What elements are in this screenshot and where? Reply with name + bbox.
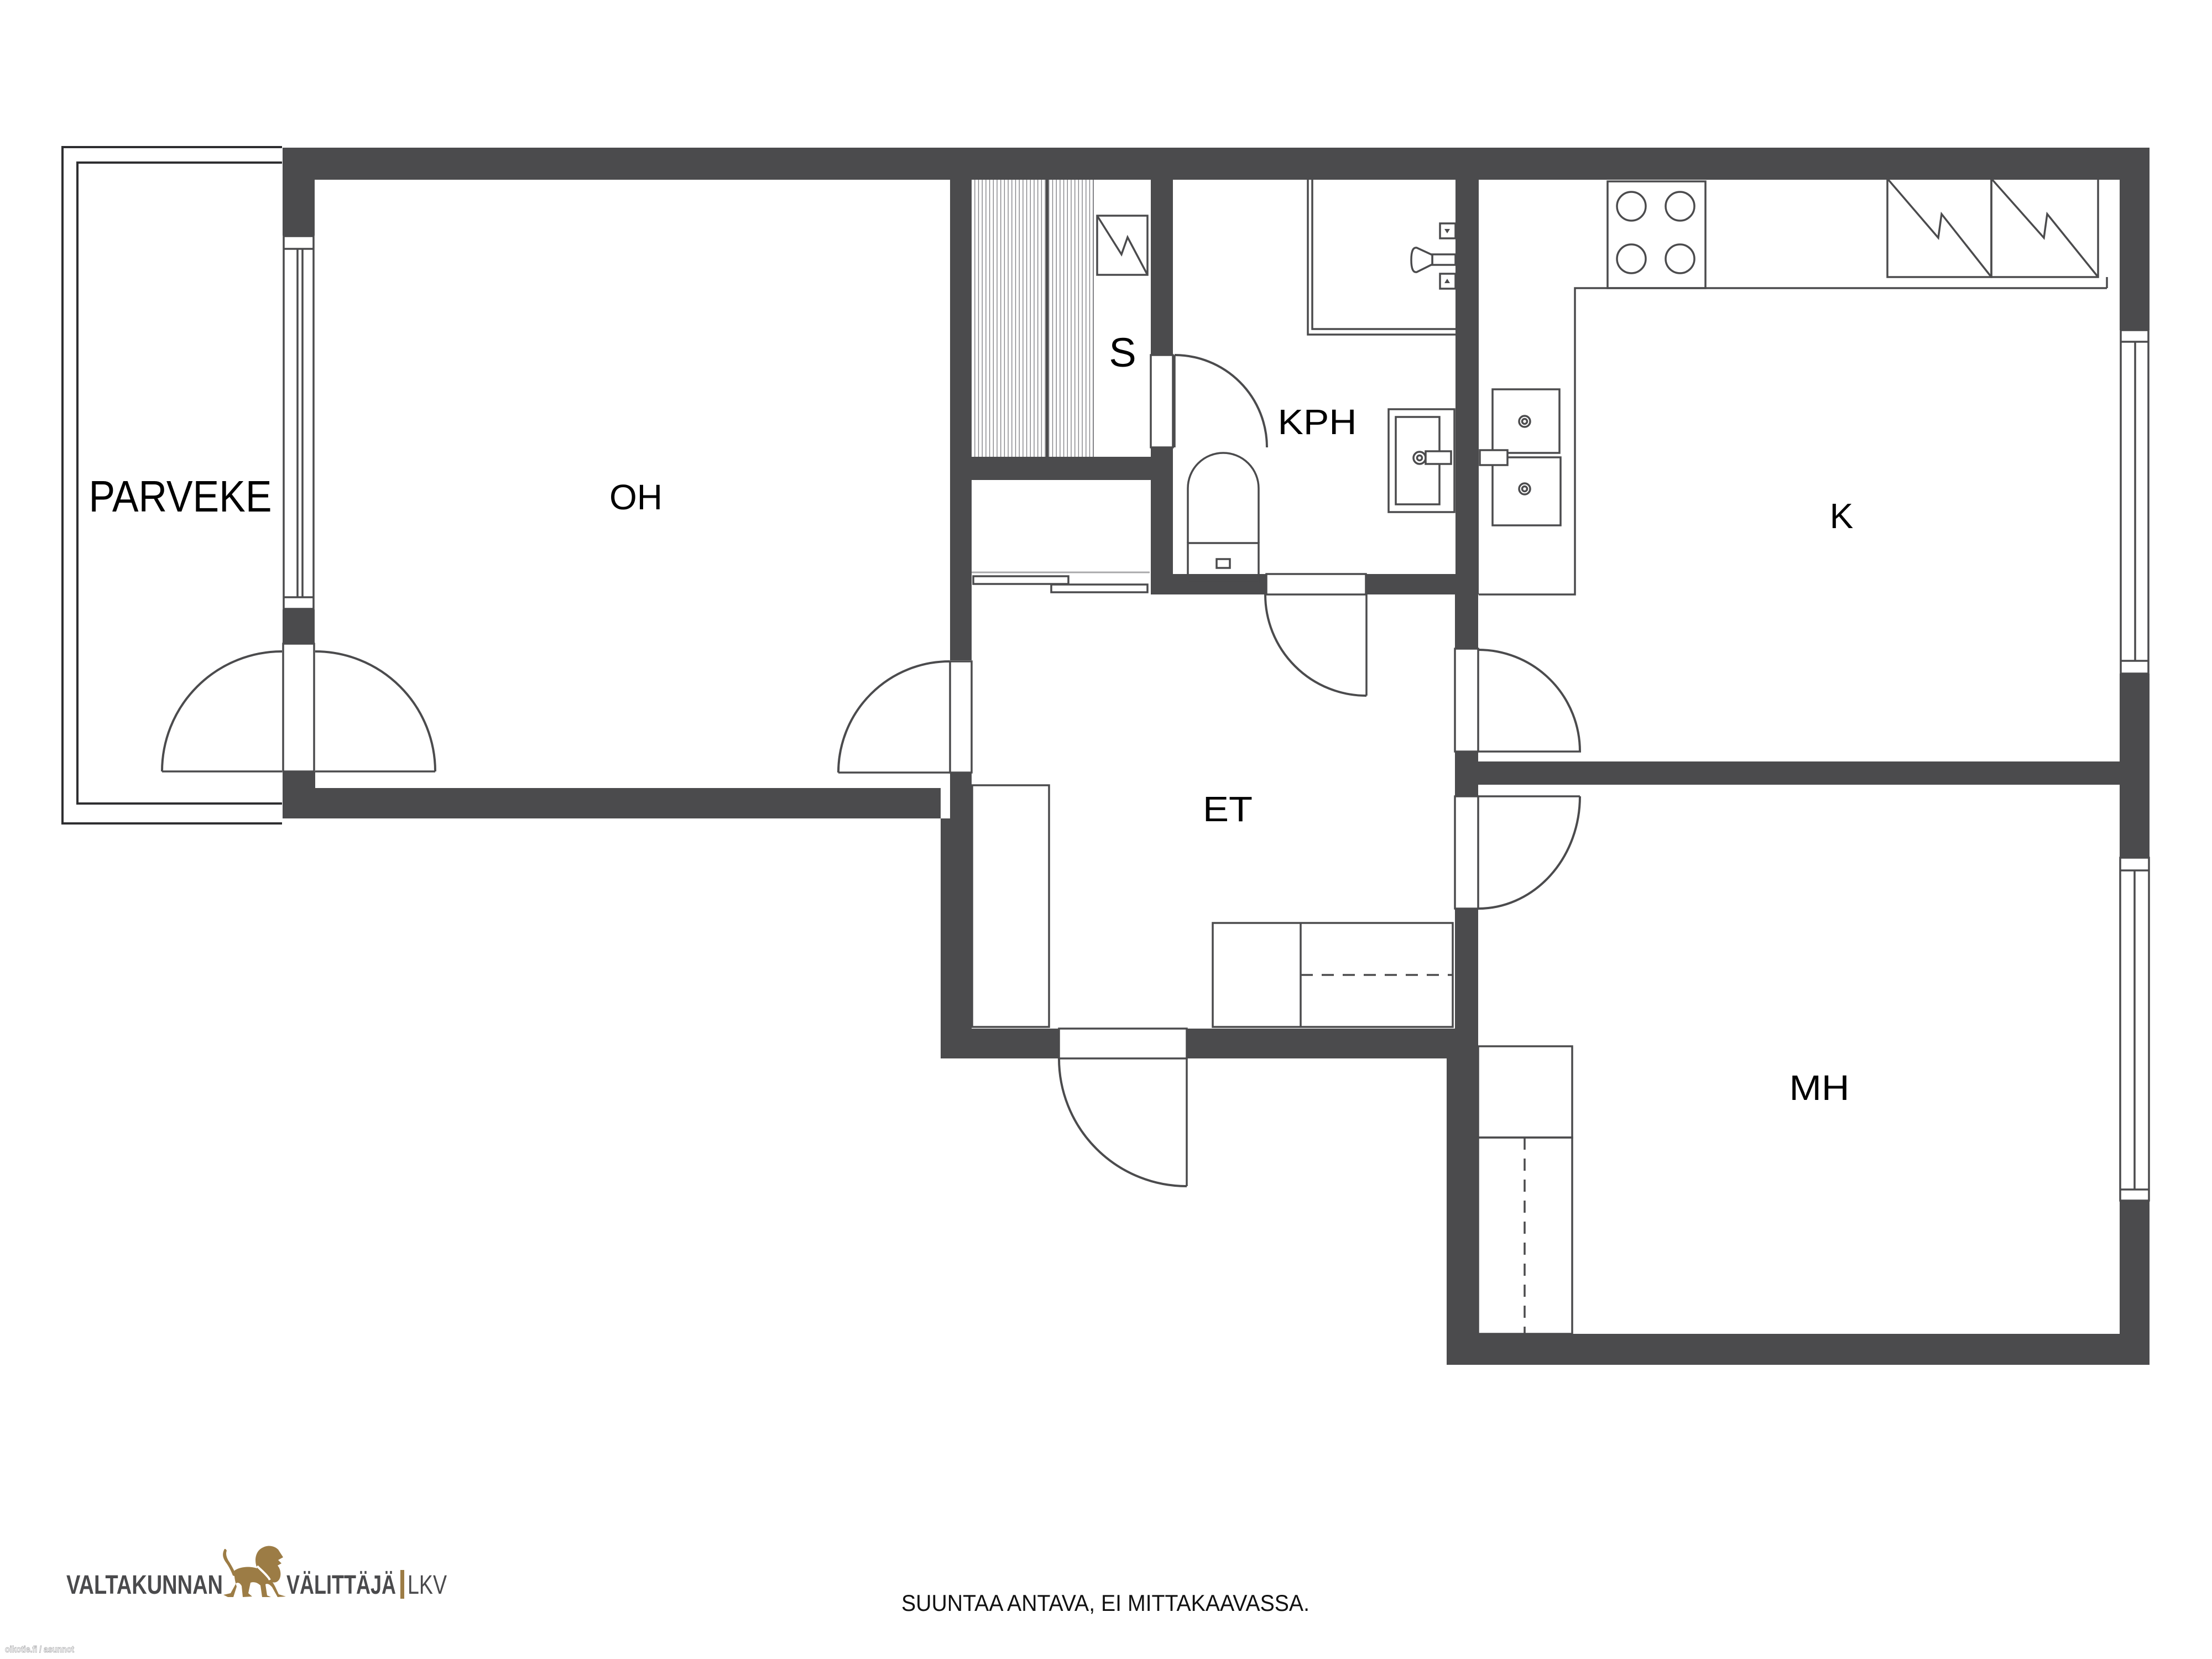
svg-text:VALTAKUNNAN: VALTAKUNNAN: [66, 1571, 223, 1600]
svg-text:K: K: [1830, 496, 1854, 536]
svg-text:S: S: [1109, 330, 1136, 375]
svg-text:oikotie.fi / asunnot: oikotie.fi / asunnot: [5, 1644, 74, 1655]
svg-text:SUUNTAA ANTAVA, EI MITTAKAAVAS: SUUNTAA ANTAVA, EI MITTAKAAVASSA.: [901, 1590, 1310, 1616]
svg-text:PARVEKE: PARVEKE: [89, 472, 272, 521]
svg-text:MH: MH: [1790, 1068, 1850, 1108]
svg-text:VÄLITTÄJÄ: VÄLITTÄJÄ: [286, 1571, 396, 1600]
svg-text:OH: OH: [609, 477, 662, 517]
svg-text:LKV: LKV: [408, 1571, 447, 1600]
svg-text:KPH: KPH: [1278, 402, 1357, 442]
svg-text:ET: ET: [1203, 789, 1253, 829]
